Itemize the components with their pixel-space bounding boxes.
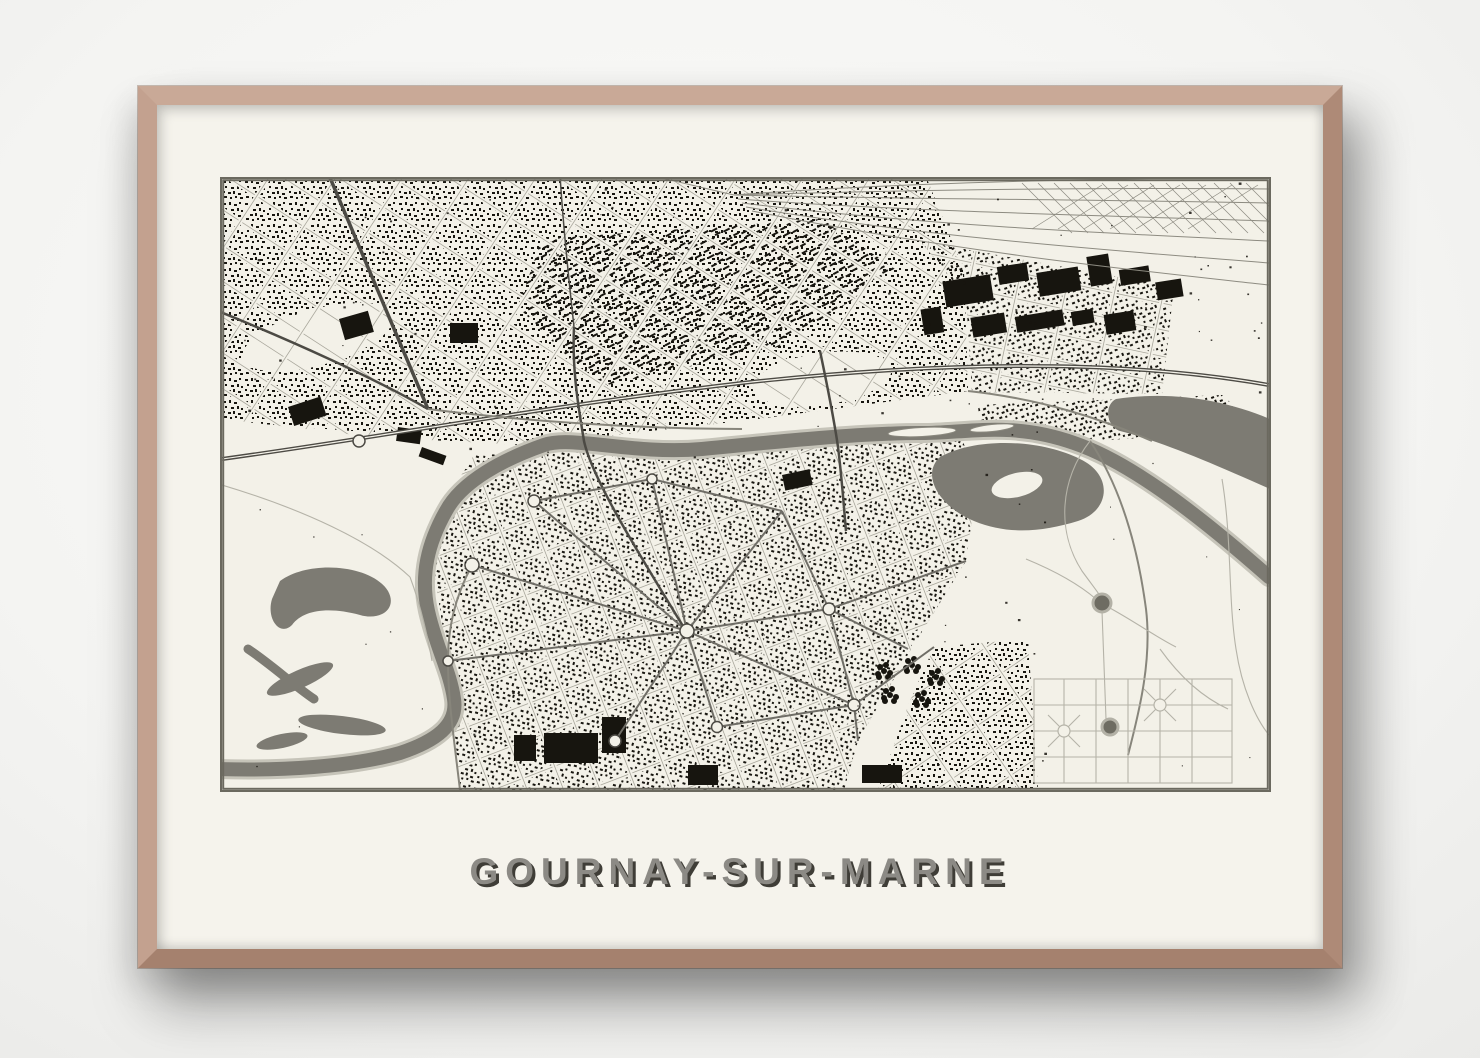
picture-frame: GOURNAY-SUR-MARNE	[138, 86, 1342, 968]
map-svg	[222, 179, 1269, 790]
poster-title: GOURNAY-SUR-MARNE	[157, 851, 1323, 893]
map-print	[220, 177, 1271, 792]
poster-paper: GOURNAY-SUR-MARNE	[157, 105, 1323, 949]
wall: GOURNAY-SUR-MARNE	[0, 0, 1480, 1058]
